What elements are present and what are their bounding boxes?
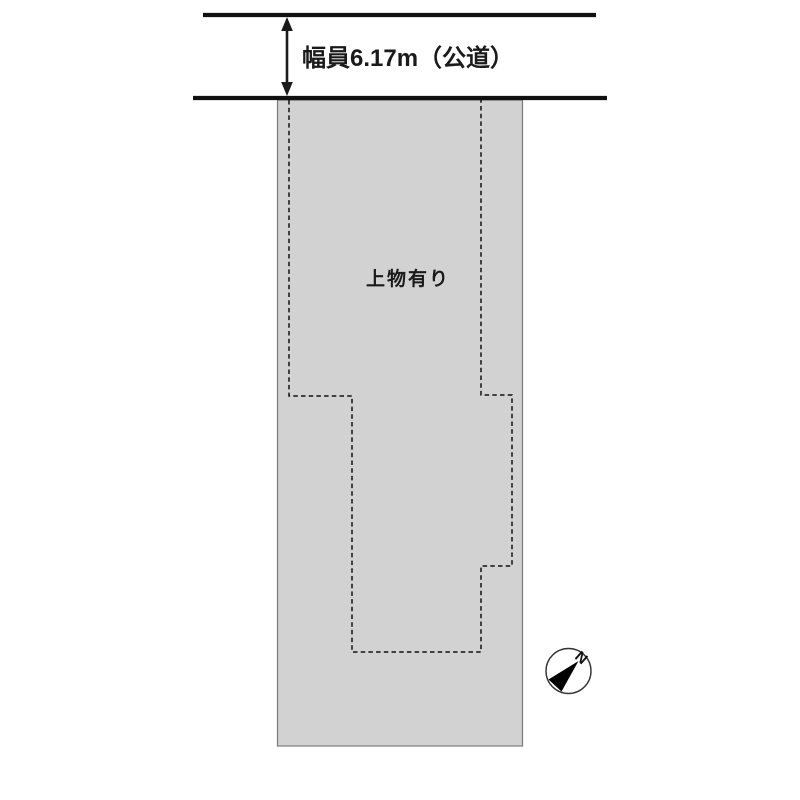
compass: N <box>546 648 591 693</box>
site-plan-canvas: N <box>0 0 800 800</box>
land-parcel <box>278 100 523 746</box>
arrow-head-up-icon <box>281 17 293 31</box>
arrow-head-down-icon <box>281 82 293 96</box>
site-plan: N 幅員6.17m（公道） 上物有り <box>0 0 800 800</box>
building-label: 上物有り <box>338 264 478 291</box>
road-width-arrow <box>281 17 293 96</box>
road-width-label: 幅員6.17m（公道） <box>302 43 514 74</box>
